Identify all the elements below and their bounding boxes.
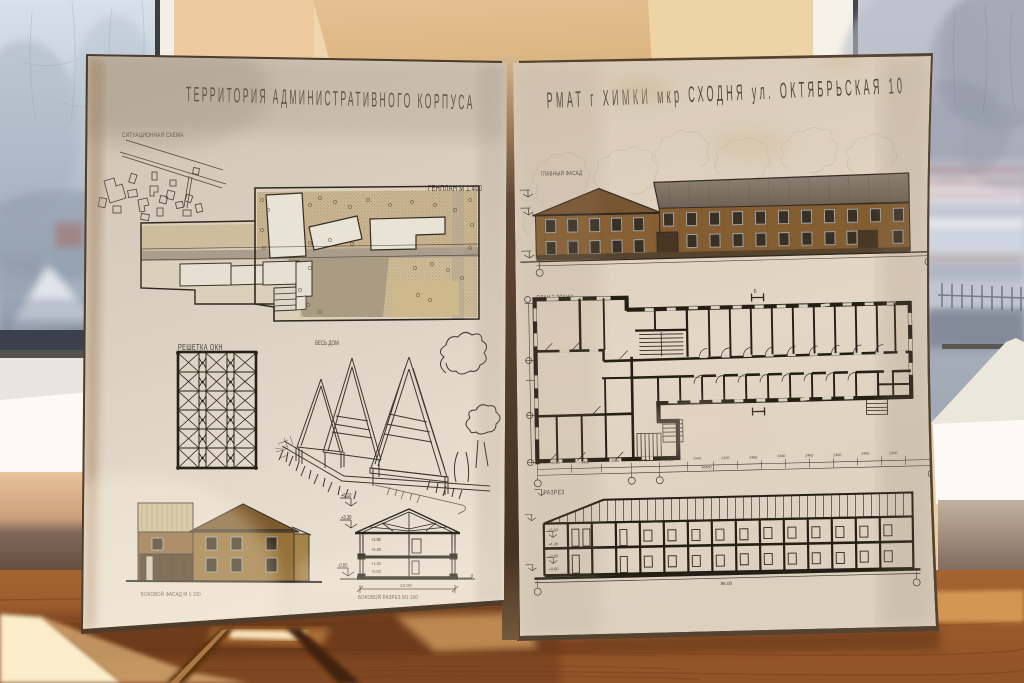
svg-text:2460: 2460 <box>749 456 757 460</box>
svg-text:ВЕСЬ ДОМ: ВЕСЬ ДОМ <box>315 340 339 347</box>
svg-text:ГЕНПЛАН М 1:400: ГЕНПЛАН М 1:400 <box>428 185 482 193</box>
svg-text:46400: 46400 <box>701 465 711 469</box>
svg-text:+2.20: +2.20 <box>371 547 381 552</box>
svg-text:2980: 2980 <box>611 459 619 463</box>
svg-text:2460: 2460 <box>805 454 813 458</box>
svg-text:2460: 2460 <box>861 452 869 456</box>
svg-text:+3.30: +3.30 <box>341 515 352 520</box>
svg-text:2420: 2420 <box>665 458 673 462</box>
svg-text:+2.80: +2.80 <box>371 537 381 542</box>
svg-text:2400: 2400 <box>777 454 785 458</box>
svg-text:+6.10: +6.10 <box>341 493 352 498</box>
svg-text:86.00: 86.00 <box>721 581 733 586</box>
svg-text:2400: 2400 <box>833 453 841 457</box>
svg-text:3440: 3440 <box>639 458 647 462</box>
